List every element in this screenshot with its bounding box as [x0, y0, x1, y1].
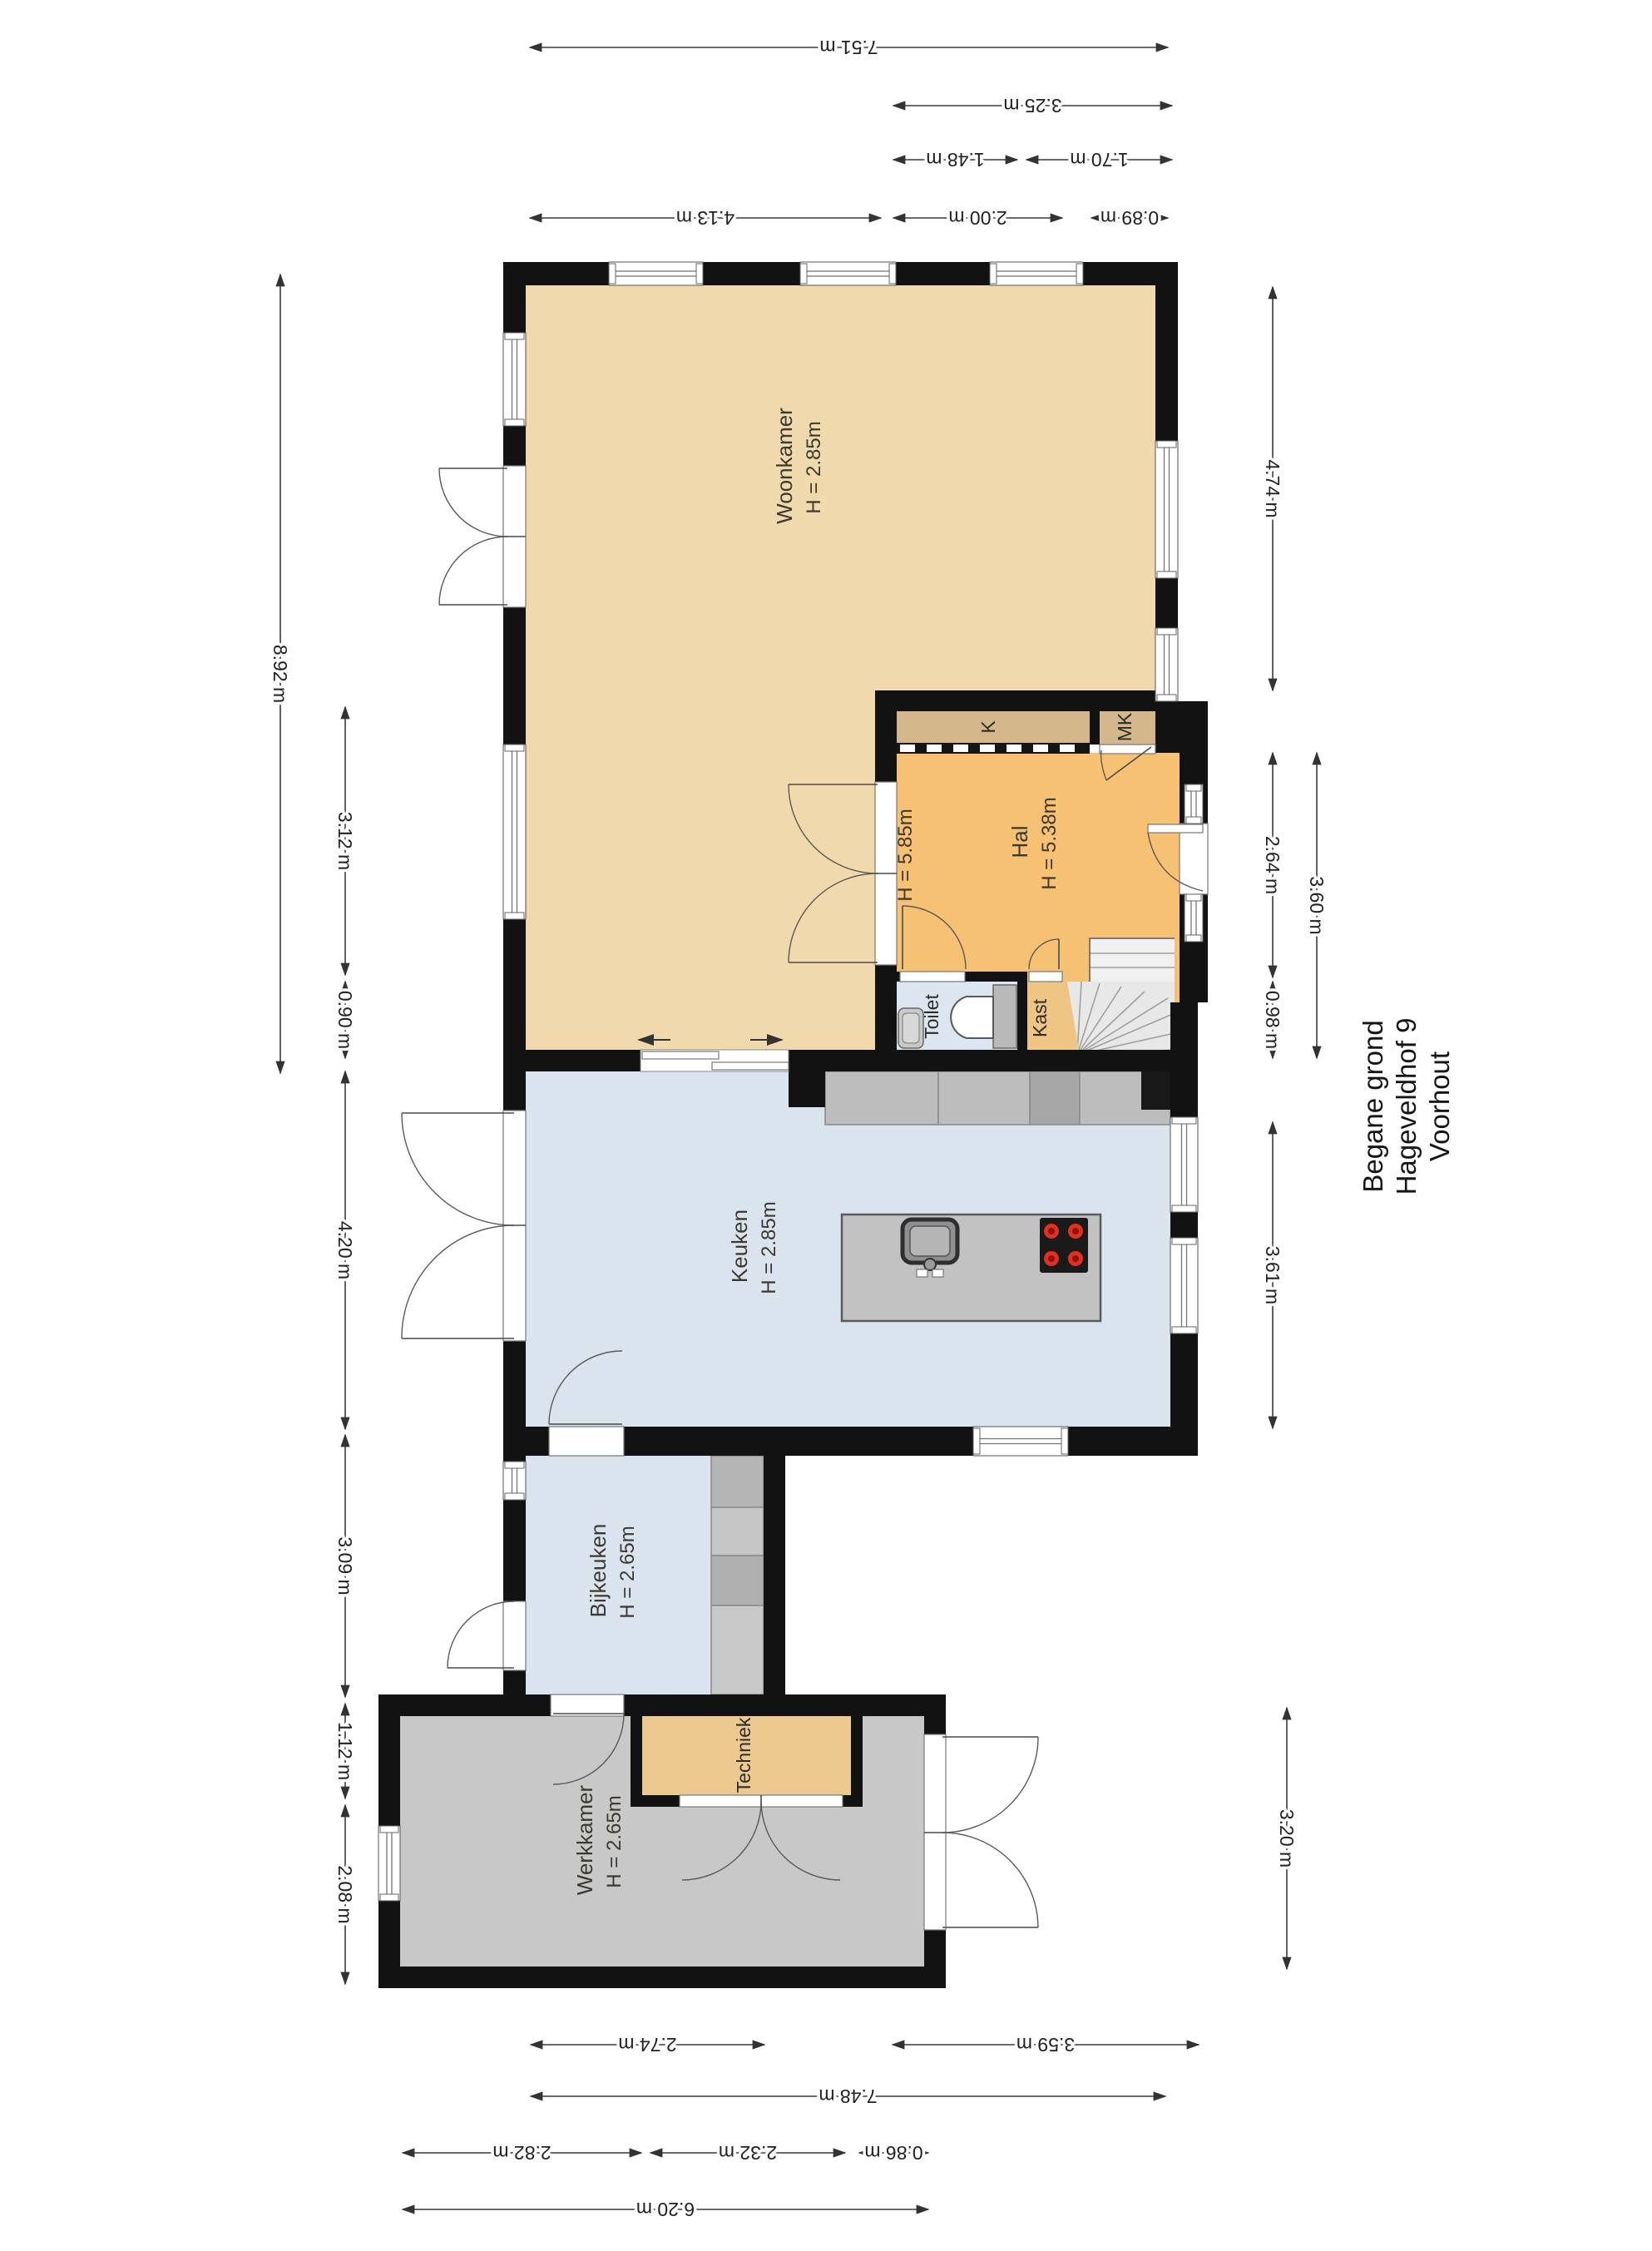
dimension-label: 3.60 m — [1306, 876, 1328, 934]
dimension-label: 3.61 m — [1262, 1246, 1284, 1304]
floor-plan-svg: 7.51 m3.25 m1.48 m1.70 m4.13 m2.00 m0.89… — [0, 0, 1652, 2251]
dimension-label: 2.00 m — [948, 207, 1007, 229]
dimension: 0.98 m — [1262, 982, 1284, 1058]
dimension-label: 1.12 m — [334, 1722, 356, 1780]
window — [1170, 1238, 1198, 1333]
label-keuken: Keuken — [727, 1210, 752, 1283]
kitchen-counter — [825, 1071, 1170, 1125]
dimension-label: 0.98 m — [1262, 991, 1284, 1049]
window — [1185, 784, 1203, 824]
k-sliding-door — [897, 743, 1090, 754]
window — [609, 262, 703, 285]
dimension-label: 7.51 m — [819, 37, 878, 58]
window — [973, 1427, 1068, 1456]
window — [990, 262, 1083, 285]
title-line-2: Hageveldhof 9 — [1391, 1018, 1422, 1195]
dimension-label: 1.70 m — [1070, 149, 1128, 171]
dimension: 0.90 m — [334, 982, 356, 1058]
label-hal-vide-height: H = 5.85m — [894, 809, 917, 901]
label-toilet: Toilet — [921, 994, 942, 1039]
label-hal-height: H = 5.38m — [1038, 797, 1061, 889]
label-techniek: Techniek — [733, 1717, 754, 1793]
dimension-label: 3.12 m — [334, 812, 356, 870]
label-woonkamer: Woonkamer — [772, 408, 797, 524]
dimension-label: 0.90 m — [334, 991, 356, 1049]
label-k-closet: K — [977, 720, 999, 734]
dimension-label: 6.20 m — [636, 2199, 695, 2220]
label-bijkeuken-height: H = 2.65m — [616, 1526, 639, 1618]
window — [800, 262, 896, 285]
window — [503, 333, 526, 426]
dimension-label: 7.48 m — [819, 2085, 877, 2107]
label-bijkeuken: Bijkeuken — [586, 1524, 611, 1618]
window — [1170, 1117, 1198, 1212]
dimension-label: 3.09 m — [334, 1536, 356, 1595]
toilet-cistern — [993, 985, 1016, 1048]
kitchen-island — [842, 1215, 1101, 1321]
dimension-label: 4.74 m — [1262, 459, 1284, 517]
dimension-label: 2.74 m — [618, 2034, 676, 2056]
label-keuken-height: H = 2.85m — [758, 1201, 780, 1294]
dimension-label: 2.64 m — [1262, 836, 1284, 894]
dimension-label: 3.59 m — [1016, 2034, 1075, 2056]
toilet-bowl-icon — [951, 997, 993, 1038]
dimension-label: 2.32 m — [719, 2142, 777, 2164]
dimension-label: 2.82 m — [492, 2142, 551, 2164]
dimension-label: 4.20 m — [334, 1221, 356, 1279]
dimension-label: 3.25 m — [1003, 95, 1061, 116]
label-mk: MK — [1114, 712, 1135, 741]
window — [503, 745, 526, 919]
window — [378, 1826, 400, 1901]
hob-icon — [1040, 1218, 1088, 1273]
window — [1155, 628, 1178, 701]
title-line-1: Begane grond — [1358, 1020, 1388, 1192]
dimension: 0.89 m — [1091, 207, 1168, 229]
label-hal: Hal — [1007, 825, 1032, 858]
bijkeuken-appliances — [711, 1456, 764, 1694]
dimension-label: 0.89 m — [1101, 207, 1159, 229]
tall-cabinet — [1141, 1071, 1170, 1110]
dimension-label: 0.86 m — [864, 2142, 922, 2164]
window — [1185, 894, 1203, 942]
label-kast: Kast — [1029, 998, 1051, 1037]
dimension-label: 2.08 m — [334, 1865, 356, 1923]
label-woonkamer-height: H = 2.85m — [803, 421, 825, 513]
dimension: 0.86 m — [859, 2142, 928, 2164]
title-line-3: Voorhout — [1424, 1051, 1455, 1161]
window — [503, 1462, 526, 1500]
window — [1155, 441, 1178, 578]
label-werkkamer-height: H = 2.65m — [603, 1795, 626, 1887]
dimension-label: 8.92 m — [270, 645, 291, 703]
dimension-label: 1.48 m — [926, 149, 984, 171]
dimension-label: 3.20 m — [1276, 1809, 1298, 1868]
dimension-label: 4.13 m — [676, 207, 734, 229]
stairs-landing — [1090, 938, 1175, 982]
label-werkkamer: Werkkamer — [572, 1784, 597, 1895]
